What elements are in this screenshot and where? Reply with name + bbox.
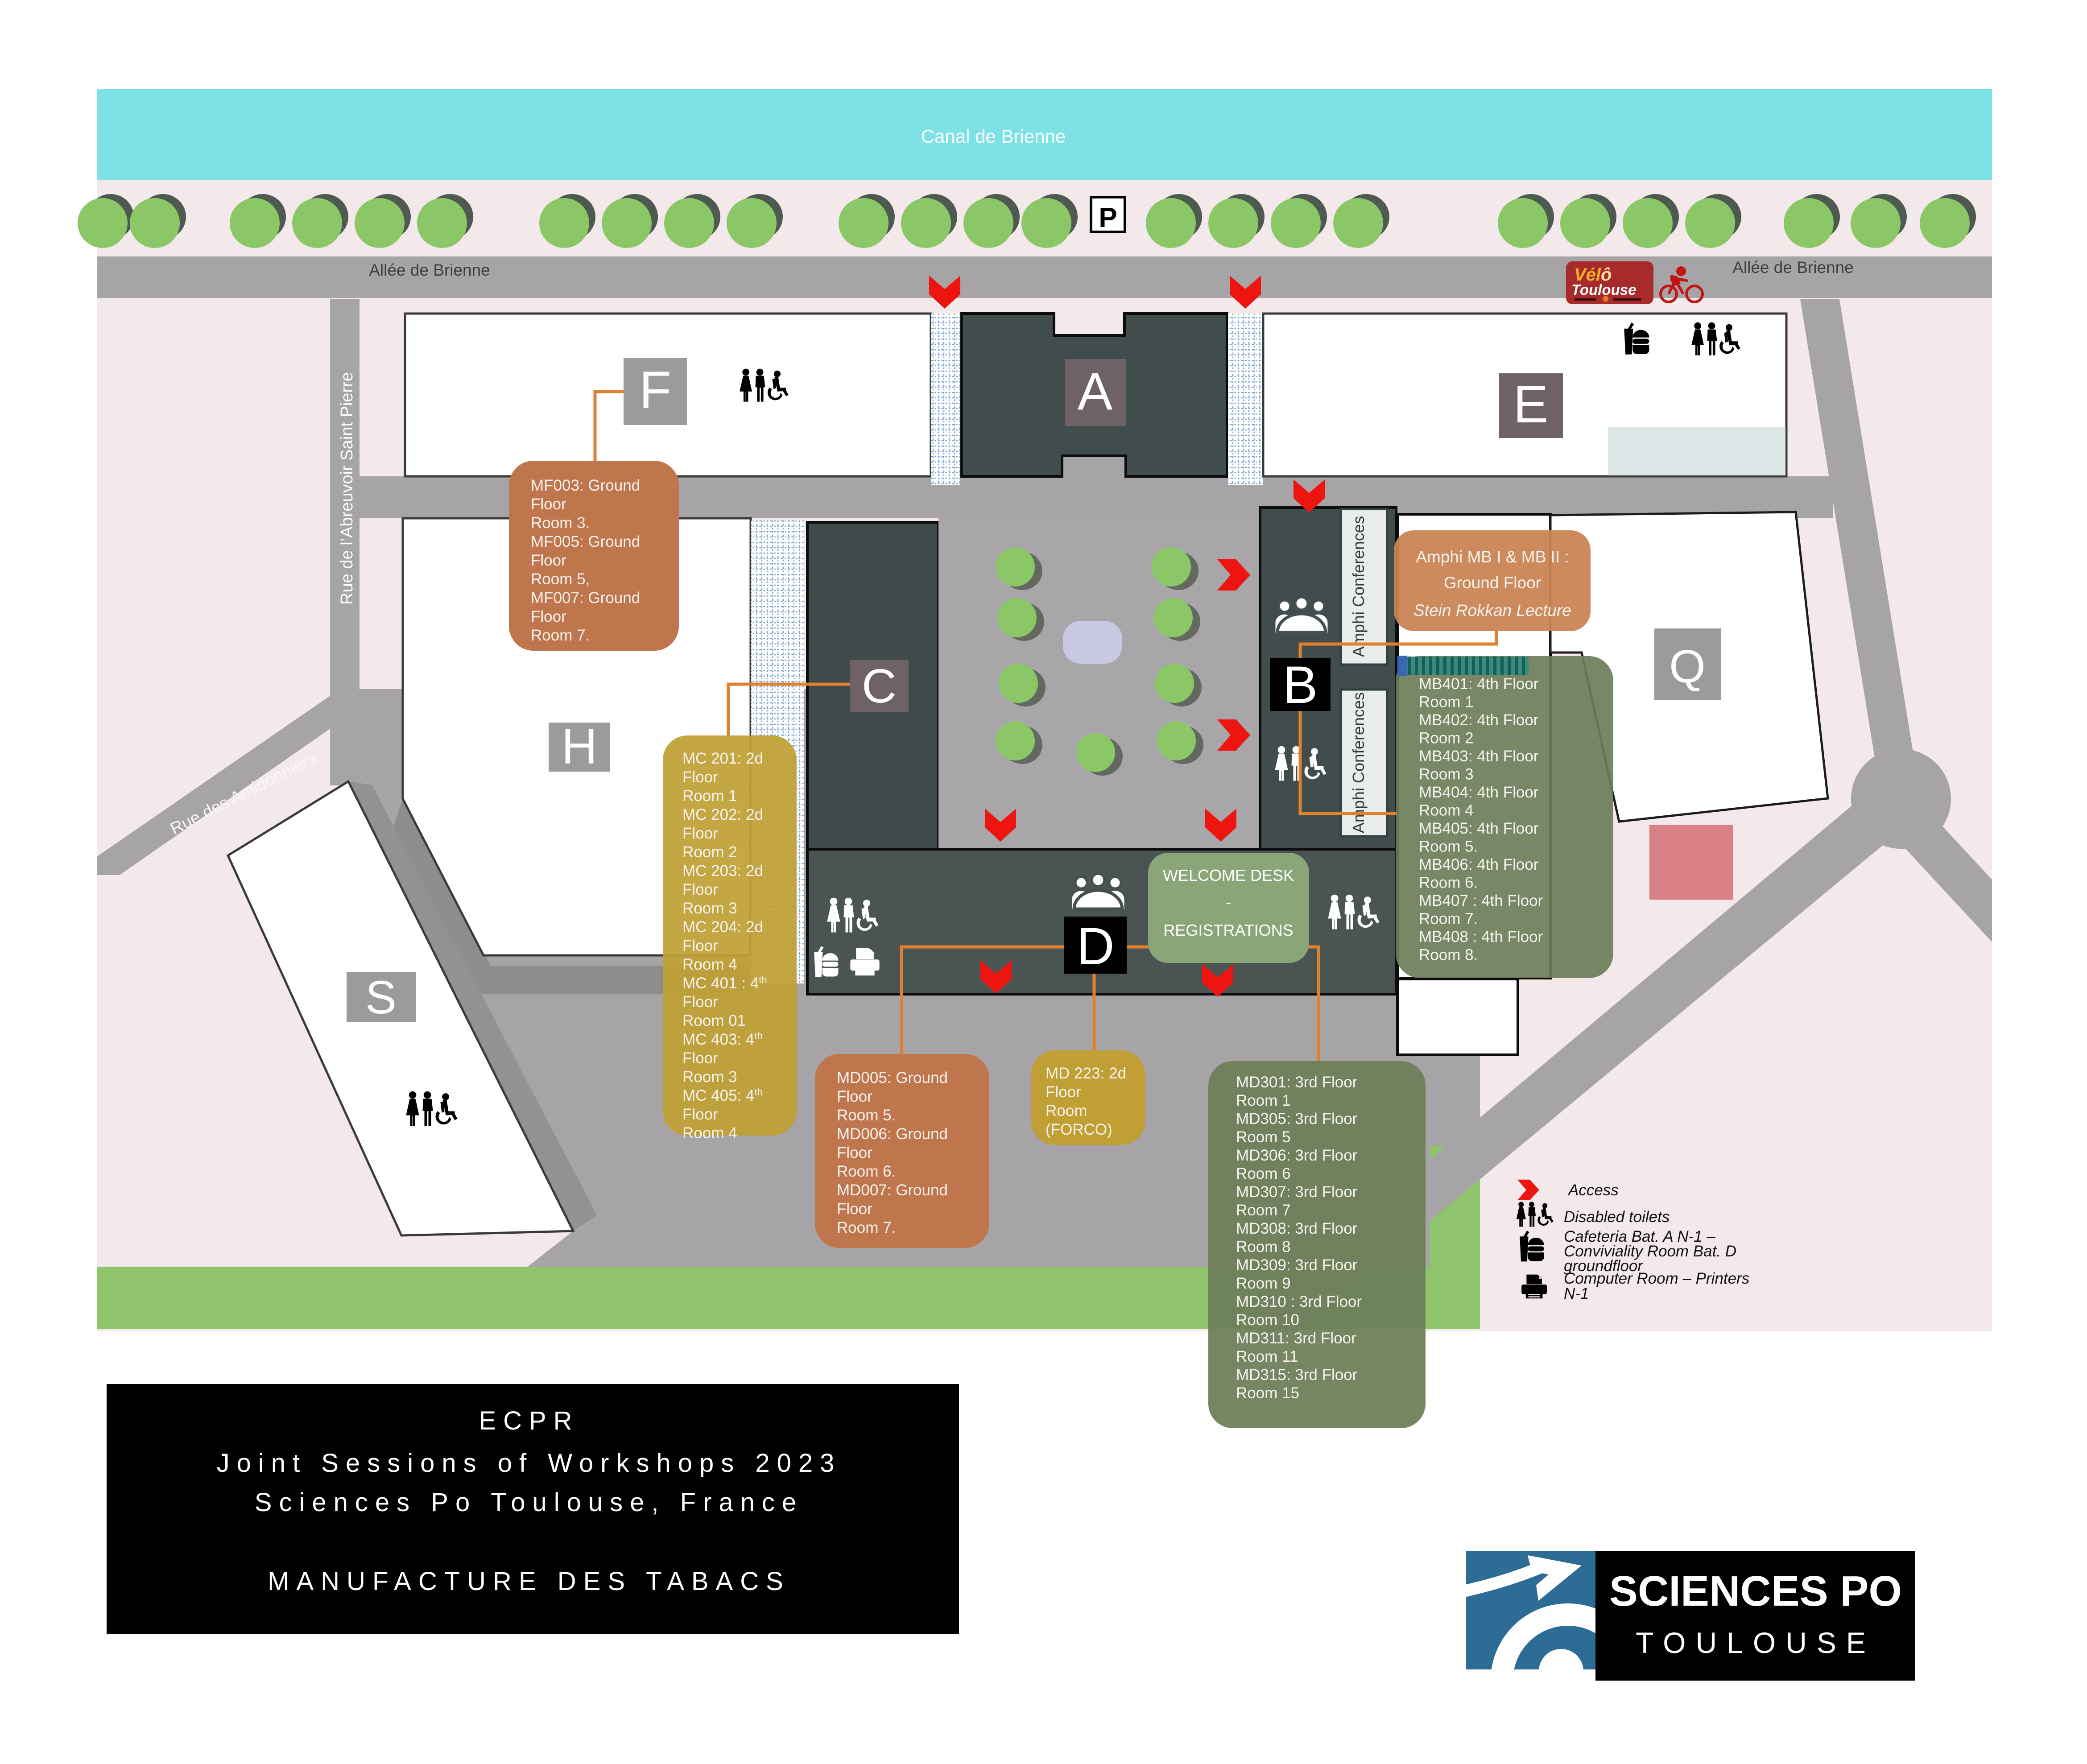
svg-text:F: F <box>639 361 671 420</box>
svg-text:Joint Sessions of Workshops 20: Joint Sessions of Workshops 2023 <box>217 1449 842 1478</box>
svg-text:REGISTRATIONS: REGISTRATIONS <box>1163 921 1293 939</box>
svg-text:S: S <box>365 971 397 1024</box>
svg-text:Rue de l’Abreuvoir Saint Pierr: Rue de l’Abreuvoir Saint Pierre <box>338 372 356 605</box>
svg-text:Amphi MB I & MB II :: Amphi MB I & MB II : <box>1416 548 1569 566</box>
svg-text:H: H <box>562 719 598 774</box>
svg-text:Toulouse: Toulouse <box>1571 281 1636 298</box>
svg-text:WELCOME DESK: WELCOME DESK <box>1163 866 1294 884</box>
svg-text:Canal de Brienne: Canal de Brienne <box>921 126 1066 147</box>
svg-text:Disabled toilets: Disabled toilets <box>1564 1208 1670 1226</box>
svg-text:Amphi Conferences: Amphi Conferences <box>1349 516 1368 657</box>
svg-text:D: D <box>1076 917 1114 976</box>
svg-text:Allée de Brienne: Allée de Brienne <box>1732 258 1854 277</box>
svg-text:N-1: N-1 <box>1564 1285 1589 1302</box>
svg-text:Q: Q <box>1669 640 1706 693</box>
svg-text:A: A <box>1078 362 1113 421</box>
svg-text:P: P <box>1099 202 1117 233</box>
svg-text:Ground Floor: Ground Floor <box>1444 574 1541 592</box>
svg-text:Allée de Brienne: Allée de Brienne <box>369 261 490 279</box>
svg-text:Sciences Po Toulouse, France: Sciences Po Toulouse, France <box>255 1488 803 1517</box>
svg-text:ECPR: ECPR <box>479 1406 579 1435</box>
svg-text:Access: Access <box>1567 1182 1619 1199</box>
svg-text:MANUFACTURE DES TABACS: MANUFACTURE DES TABACS <box>268 1567 790 1596</box>
svg-text:-: - <box>1226 893 1231 911</box>
svg-text:TOULOUSE: TOULOUSE <box>1636 1626 1876 1659</box>
svg-text:Stein Rokkan Lecture: Stein Rokkan Lecture <box>1413 601 1571 620</box>
svg-text:Computer Room – Printers: Computer Room – Printers <box>1564 1270 1749 1287</box>
svg-text:SCIENCES PO: SCIENCES PO <box>1609 1567 1902 1615</box>
svg-text:E: E <box>1513 375 1549 434</box>
svg-text:B: B <box>1283 656 1318 715</box>
svg-text:C: C <box>862 659 897 713</box>
